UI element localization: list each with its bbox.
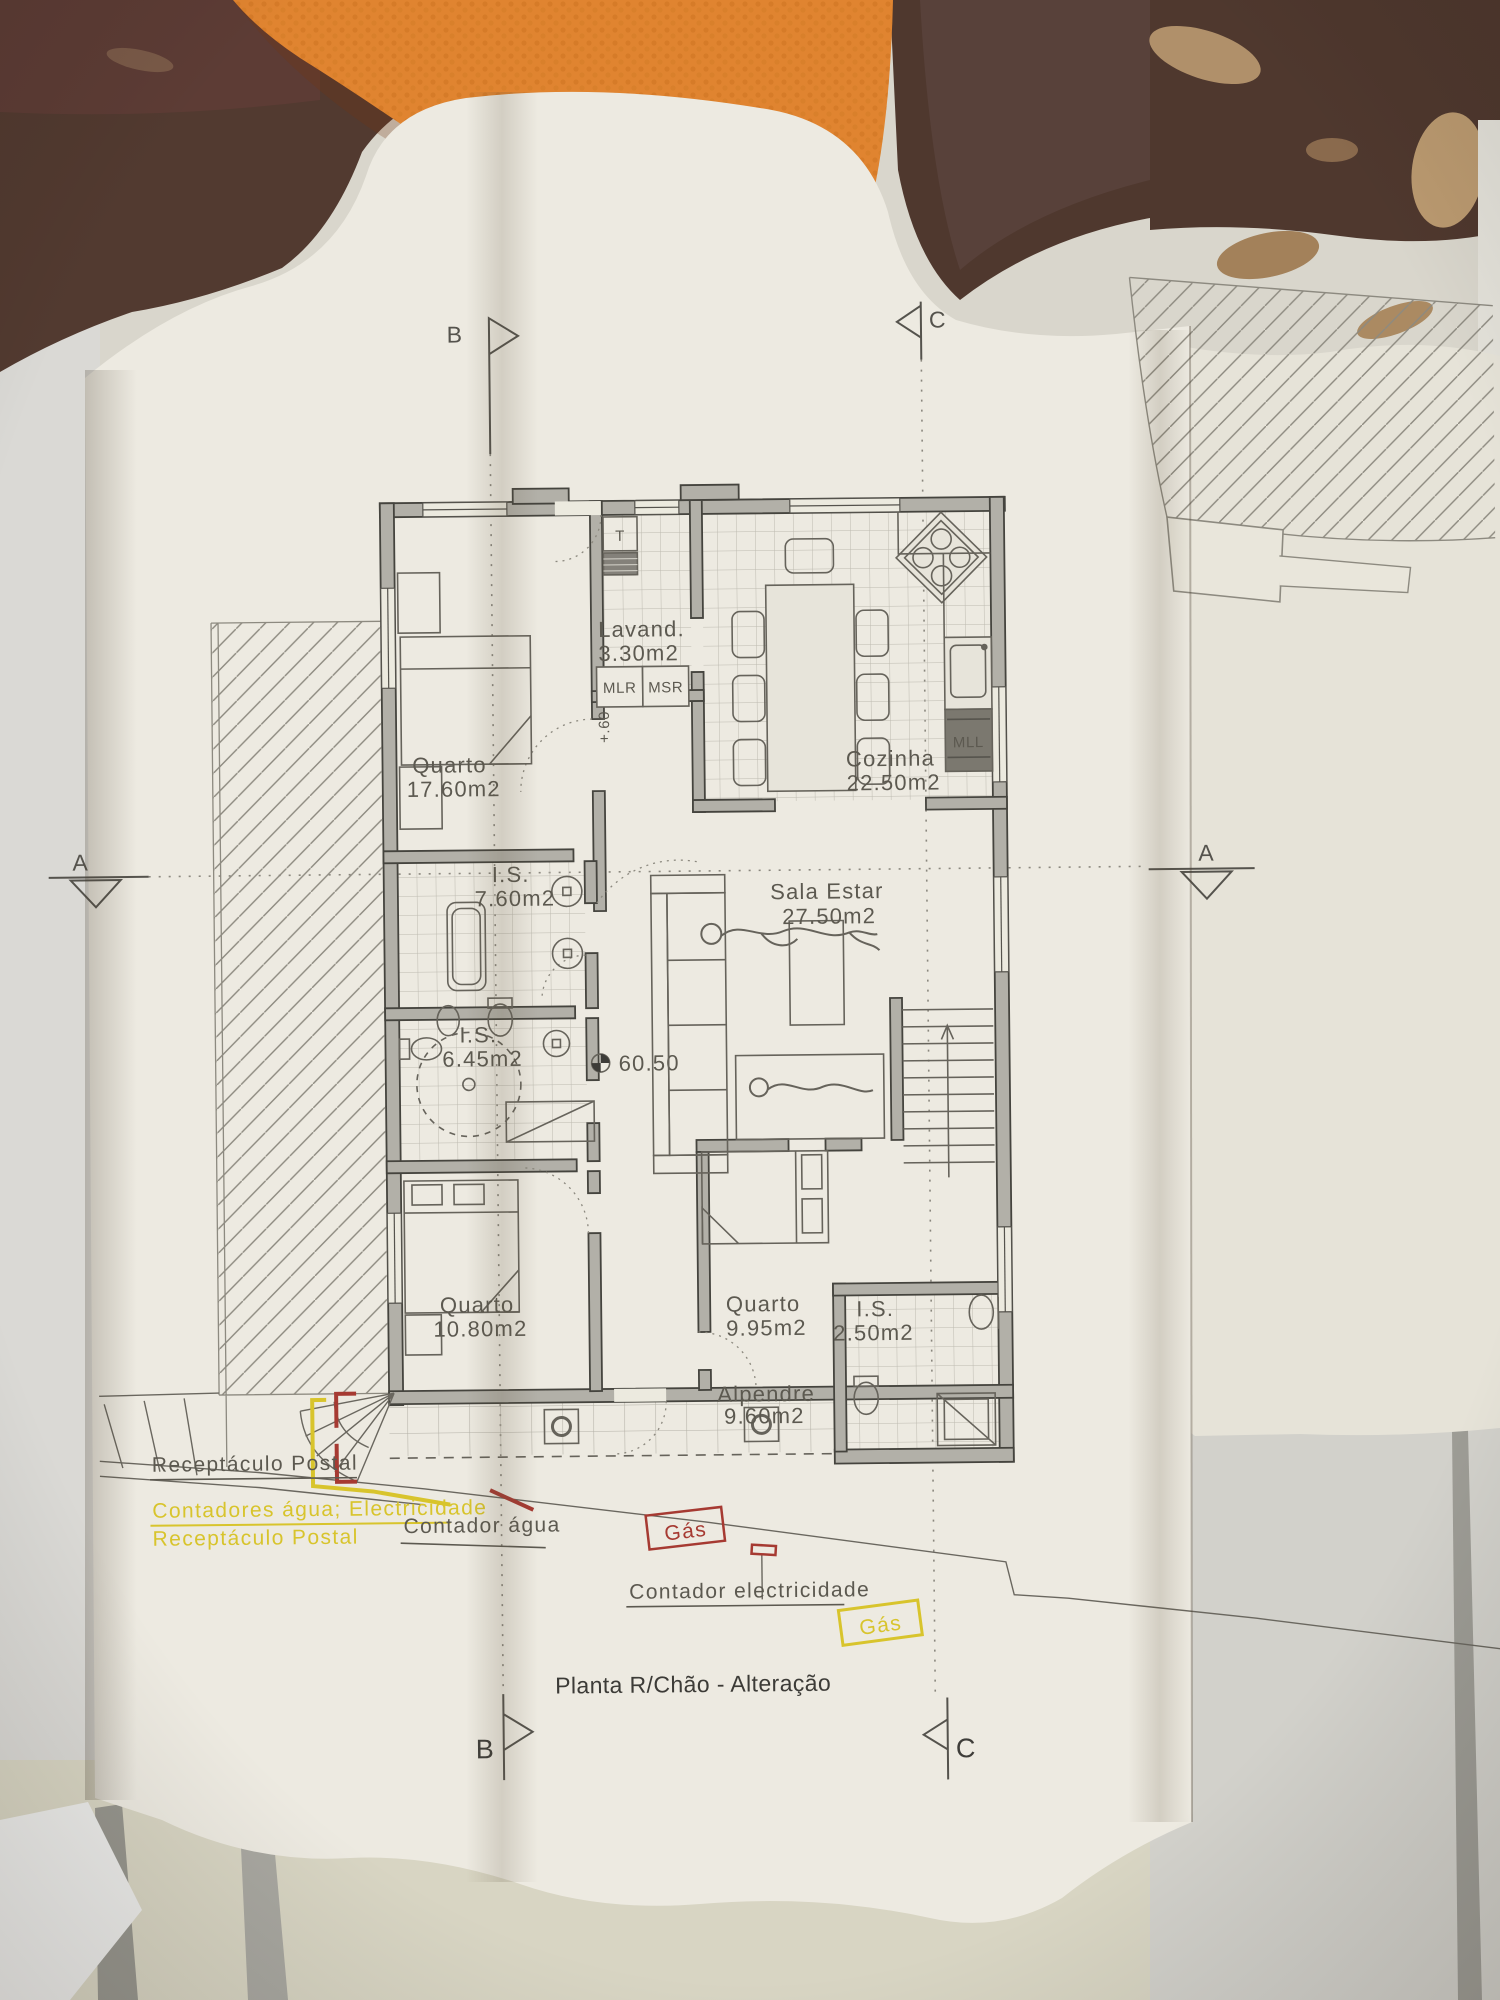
photo-of-floor-plan-document: B C A A B C bbox=[0, 0, 1500, 2000]
paper-folds bbox=[0, 0, 1500, 2000]
floor-plan-photo: B C A A B C bbox=[0, 0, 1500, 2000]
